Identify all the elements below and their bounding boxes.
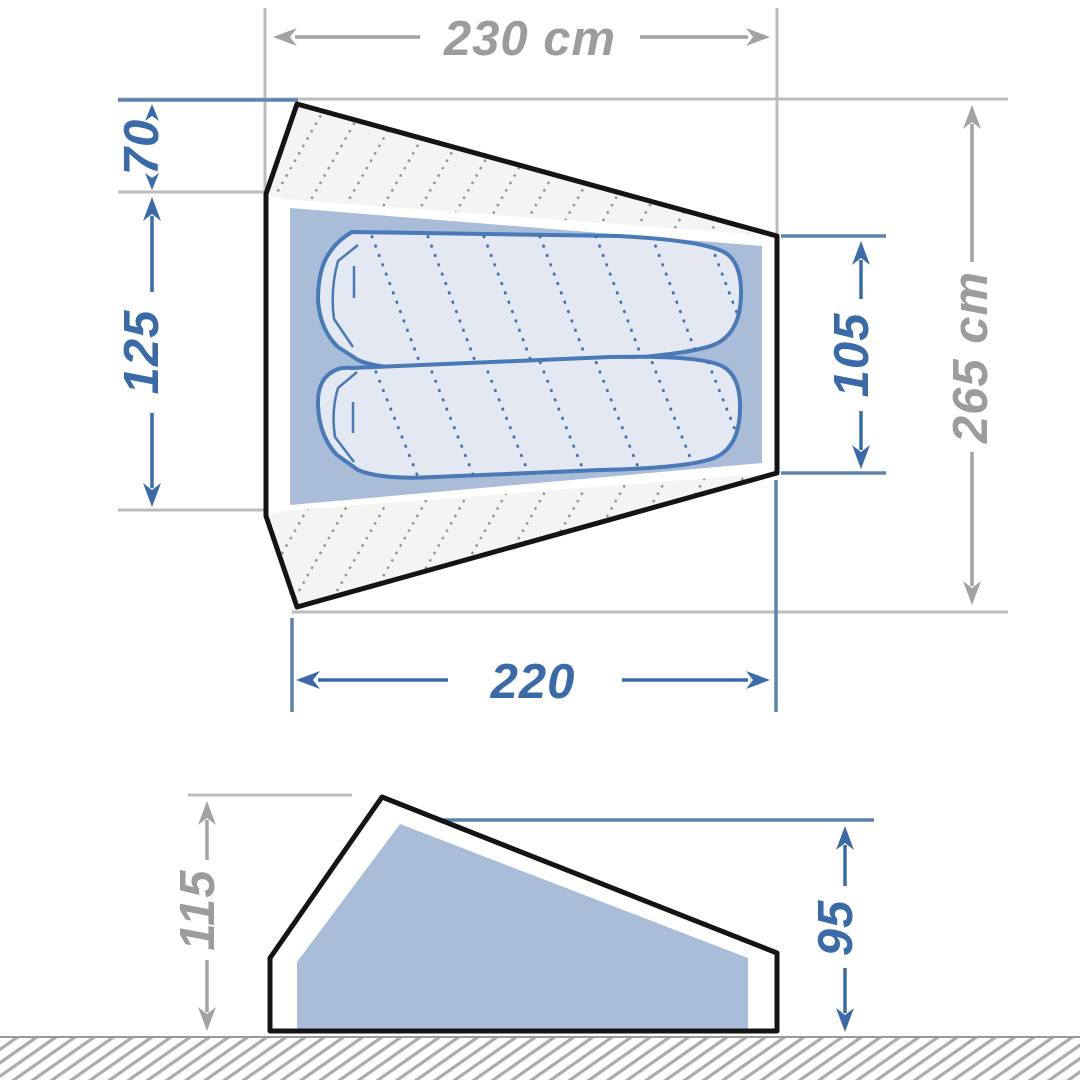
hatch-stroke	[772, 90, 867, 258]
arrow-left-icon	[296, 671, 320, 689]
dim-inner-height: 95	[809, 826, 863, 1032]
dim-bedroom-width-left: 125	[115, 197, 169, 507]
ground-hatch	[0, 1038, 1080, 1080]
dim-outer-height-label: 115	[171, 869, 225, 950]
sleeping-pad-2	[318, 352, 756, 482]
hatch-stroke	[772, 460, 867, 628]
arrow-right-icon	[746, 671, 770, 689]
dim-bedroom-length: 220	[296, 655, 770, 709]
dim-outer-length-label: 265 cm	[944, 271, 998, 444]
dim-bedroom-width-left-label: 125	[115, 310, 169, 395]
dim-bedroom-width-right: 105	[825, 241, 879, 469]
arrow-up-icon	[145, 104, 159, 121]
diagram-canvas: 230 cm 70 125 105	[0, 0, 1080, 1080]
arrow-left-icon	[273, 28, 297, 46]
dim-outer-width: 230 cm	[273, 12, 770, 66]
dim-vestibule-depth: 70	[115, 104, 169, 190]
dim-vestibule-depth-label: 70	[115, 119, 169, 176]
top-view: 230 cm 70 125 105	[115, 8, 1008, 712]
sleeping-pad-1	[318, 226, 760, 374]
dim-bedroom-width-right-label: 105	[825, 313, 879, 398]
dim-outer-length: 265 cm	[944, 105, 998, 605]
arrow-right-icon	[746, 28, 770, 46]
extension-lines-side-view	[188, 795, 874, 820]
ground	[0, 1037, 1080, 1080]
dim-outer-height: 115	[171, 801, 225, 1031]
hatch-stroke	[734, 460, 829, 628]
side-view: 115 95	[0, 795, 1080, 1080]
tent-dimension-diagram: 230 cm 70 125 105	[0, 0, 1080, 1080]
dim-outer-width-label: 230 cm	[443, 12, 616, 66]
dim-inner-height-label: 95	[809, 900, 863, 957]
dim-bedroom-length-label: 220	[490, 655, 576, 709]
